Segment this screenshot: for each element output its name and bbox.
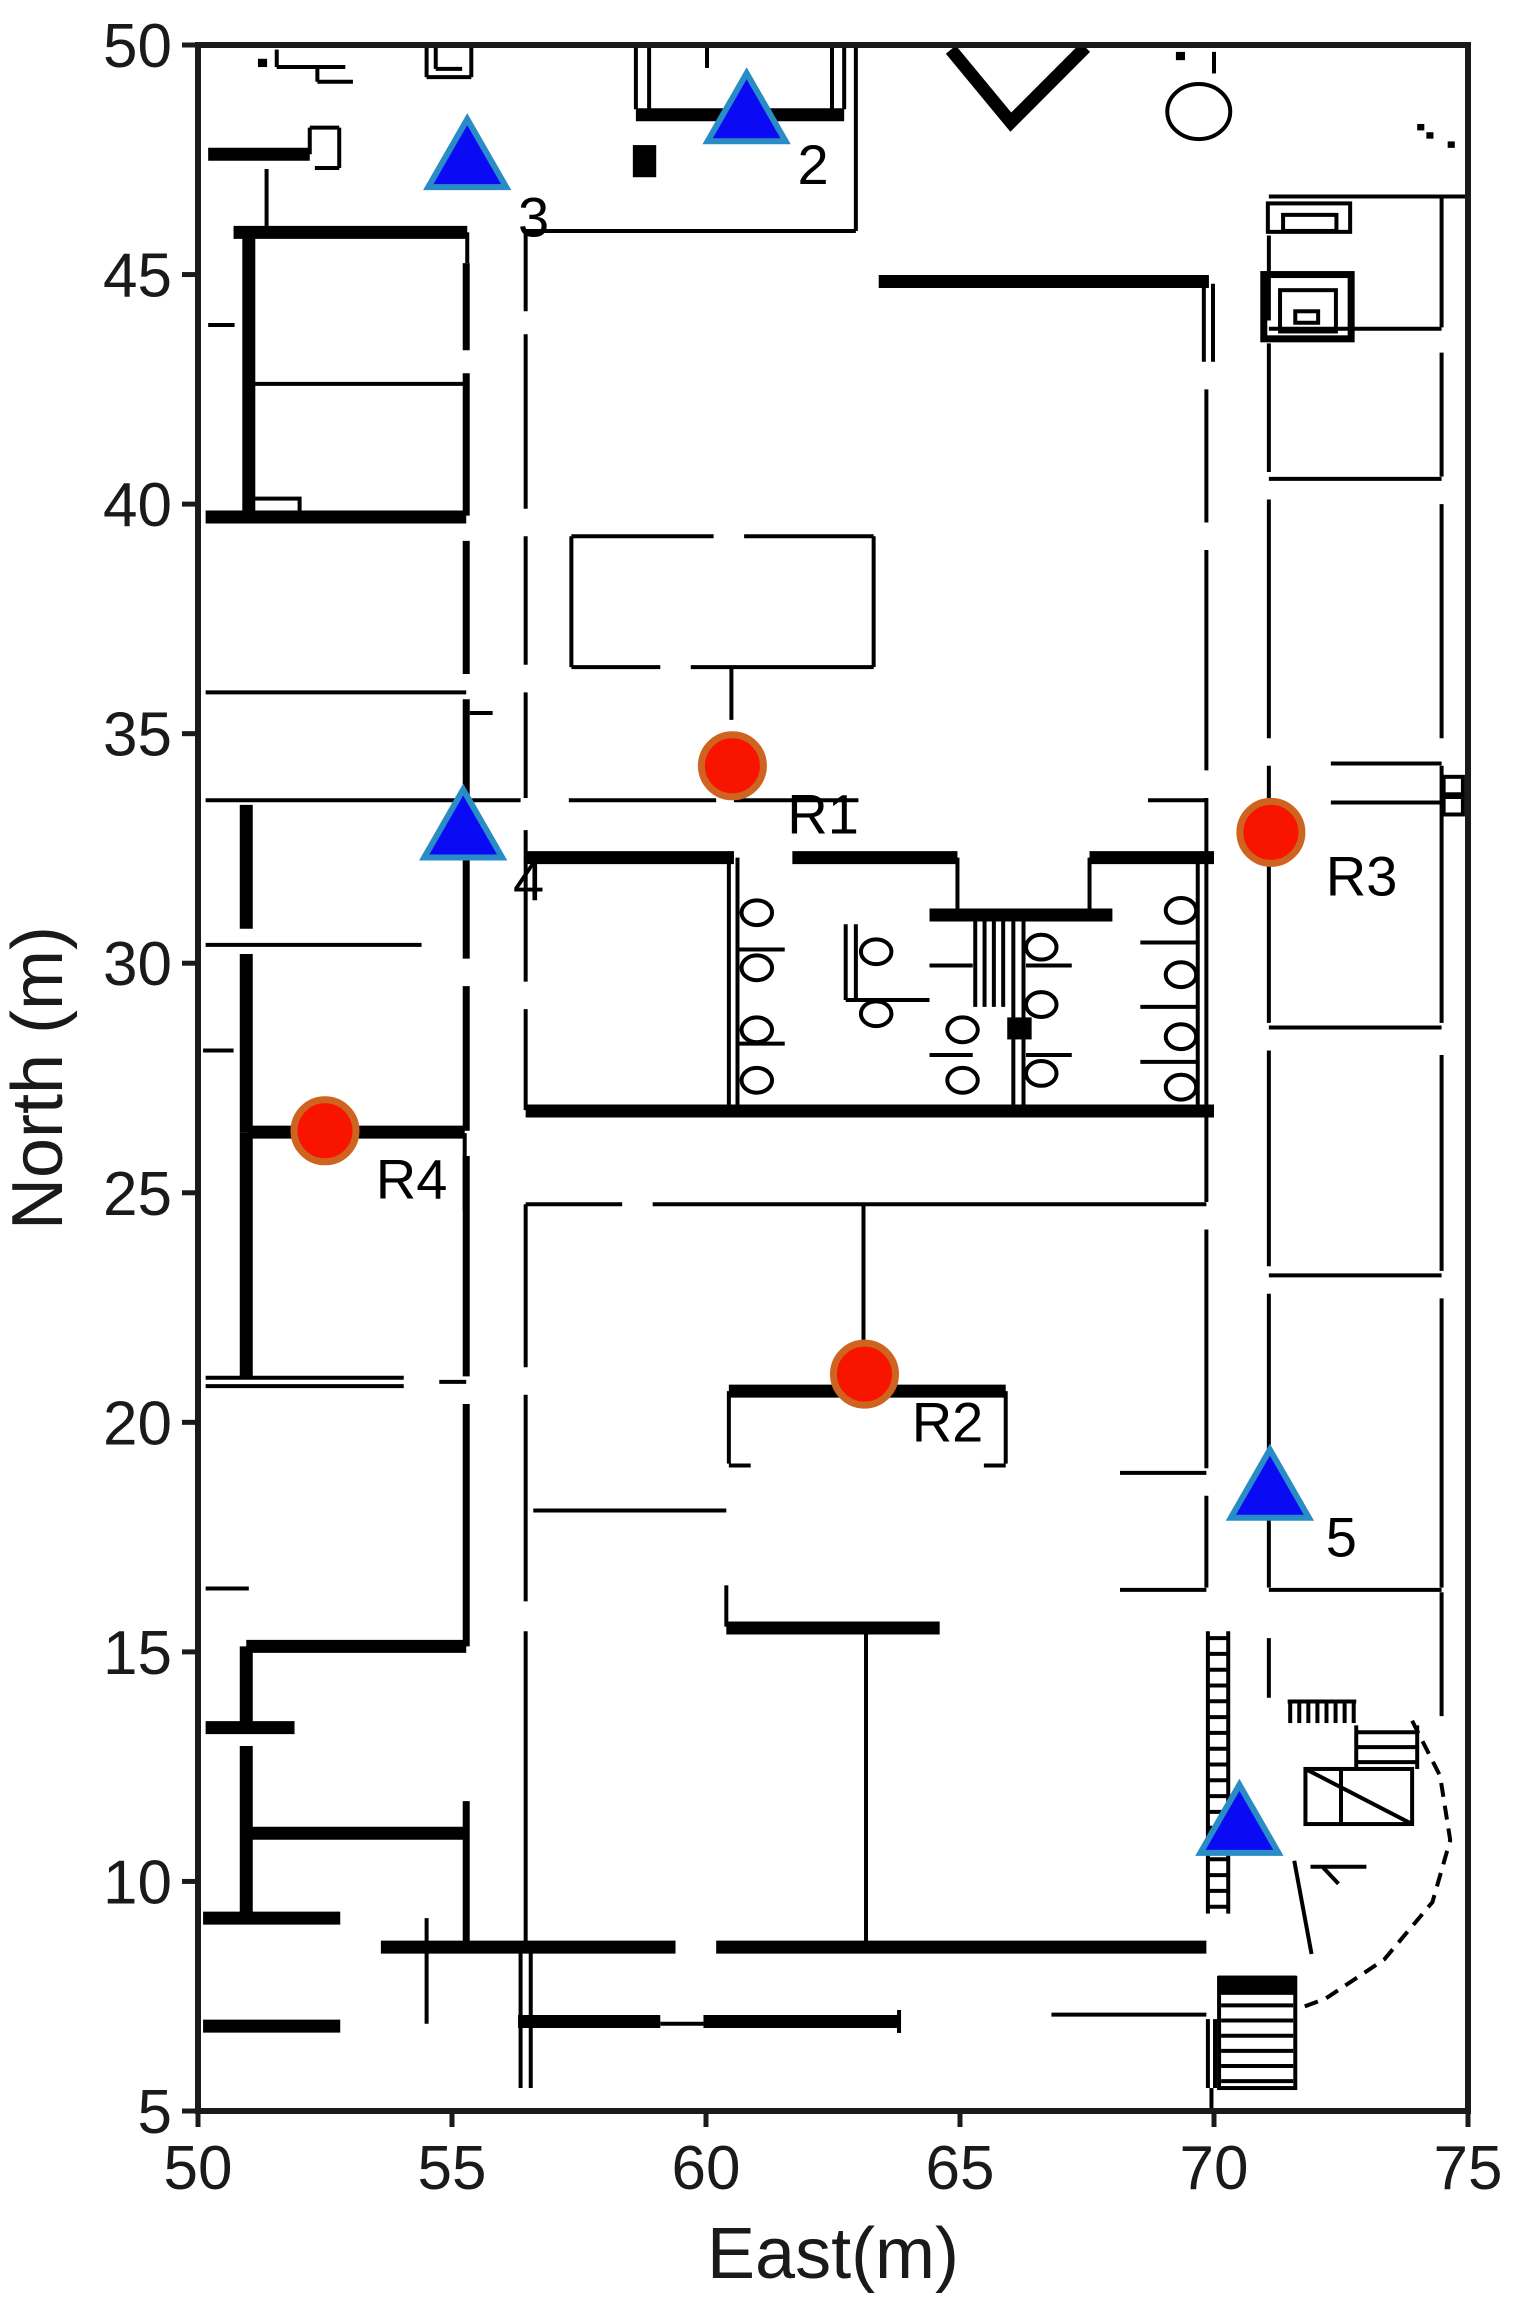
- y-tick-label-25: 25: [103, 1160, 172, 1229]
- y-tick-label-50: 50: [103, 12, 172, 81]
- x-tick-label-75: 75: [1434, 2134, 1503, 2203]
- y-tick-label-35: 35: [103, 701, 172, 770]
- x-tick-label-50: 50: [164, 2134, 233, 2203]
- y-tick-label-30: 30: [103, 930, 172, 999]
- y-tick-label-5: 5: [138, 2078, 172, 2147]
- x-tick-label-65: 65: [926, 2134, 995, 2203]
- map-wall: [951, 47, 1086, 122]
- marker-label-3: 3: [518, 186, 549, 249]
- floorplan-walls: [203, 45, 1465, 2109]
- map-fixture: [1167, 84, 1230, 139]
- map-fixture: [1026, 935, 1056, 960]
- map-fixture: [1166, 898, 1196, 923]
- map-structure: [1007, 1017, 1031, 1039]
- anchor-marker-2: [708, 73, 786, 141]
- map-structure: [1283, 215, 1336, 231]
- map-fixture: [742, 900, 772, 925]
- map-fixture: [947, 1068, 977, 1093]
- y-tick-label-40: 40: [103, 471, 172, 540]
- map-structure: [1448, 141, 1455, 147]
- map-fixture: [1166, 962, 1196, 987]
- x-tick-label-70: 70: [1180, 2134, 1249, 2203]
- marker-label-R2: R2: [912, 1391, 984, 1454]
- map-fixture: [742, 1017, 772, 1042]
- anchor-marker-5: [1231, 1450, 1309, 1518]
- map-fixture: [947, 1017, 977, 1042]
- map-fixture: [1166, 1024, 1196, 1049]
- map-fixture: [1026, 1061, 1056, 1086]
- map-structure: [1176, 52, 1185, 60]
- robot-marker-R2: [833, 1343, 895, 1405]
- robot-marker-R3: [1240, 801, 1302, 863]
- x-axis-label: East(m): [707, 2214, 959, 2294]
- y-axis-label: North (m): [0, 926, 78, 1230]
- robot-marker-R1: [701, 735, 763, 797]
- x-tick-label-60: 60: [672, 2134, 741, 2203]
- map-structure: [258, 59, 267, 67]
- map-structure: [1417, 124, 1424, 130]
- map-structure: [1444, 797, 1463, 814]
- map-fixture: [861, 939, 891, 964]
- map-wall: [1294, 1861, 1311, 1954]
- map-fixture: [742, 955, 772, 980]
- map-structure: [1295, 311, 1318, 322]
- map-structure: [1218, 1976, 1296, 1995]
- marker-label-2: 2: [797, 133, 828, 196]
- map-fixture: [861, 1001, 891, 1026]
- map-fixture: [1026, 992, 1056, 1017]
- marker-label-R4: R4: [376, 1147, 448, 1210]
- marker-label-R3: R3: [1326, 844, 1398, 907]
- y-tick-label-15: 15: [103, 1619, 172, 1688]
- y-tick-label-45: 45: [103, 242, 172, 311]
- map-fixture: [1166, 1075, 1196, 1100]
- map-fixture: [742, 1068, 772, 1093]
- axes-box: [198, 45, 1468, 2111]
- matlab-figure: 2345R1R2R3R4 505560657075510152025303540…: [0, 0, 1513, 2307]
- marker-label-5: 5: [1326, 1505, 1357, 1568]
- x-tick-label-55: 55: [418, 2134, 487, 2203]
- marker-label-R1: R1: [787, 782, 859, 845]
- map-wall: [1323, 1868, 1338, 1884]
- marker-label-4: 4: [513, 849, 544, 912]
- y-tick-label-20: 20: [103, 1389, 172, 1458]
- map-structure: [633, 145, 656, 177]
- anchor-marker-3: [428, 119, 506, 187]
- map-structure: [1444, 777, 1463, 794]
- map-wall: [1305, 1769, 1412, 1824]
- y-tick-label-10: 10: [103, 1848, 172, 1917]
- floorplan-plot: 2345R1R2R3R4 505560657075510152025303540…: [0, 0, 1513, 2307]
- map-structure: [1426, 132, 1433, 138]
- robot-marker-R4: [294, 1100, 356, 1162]
